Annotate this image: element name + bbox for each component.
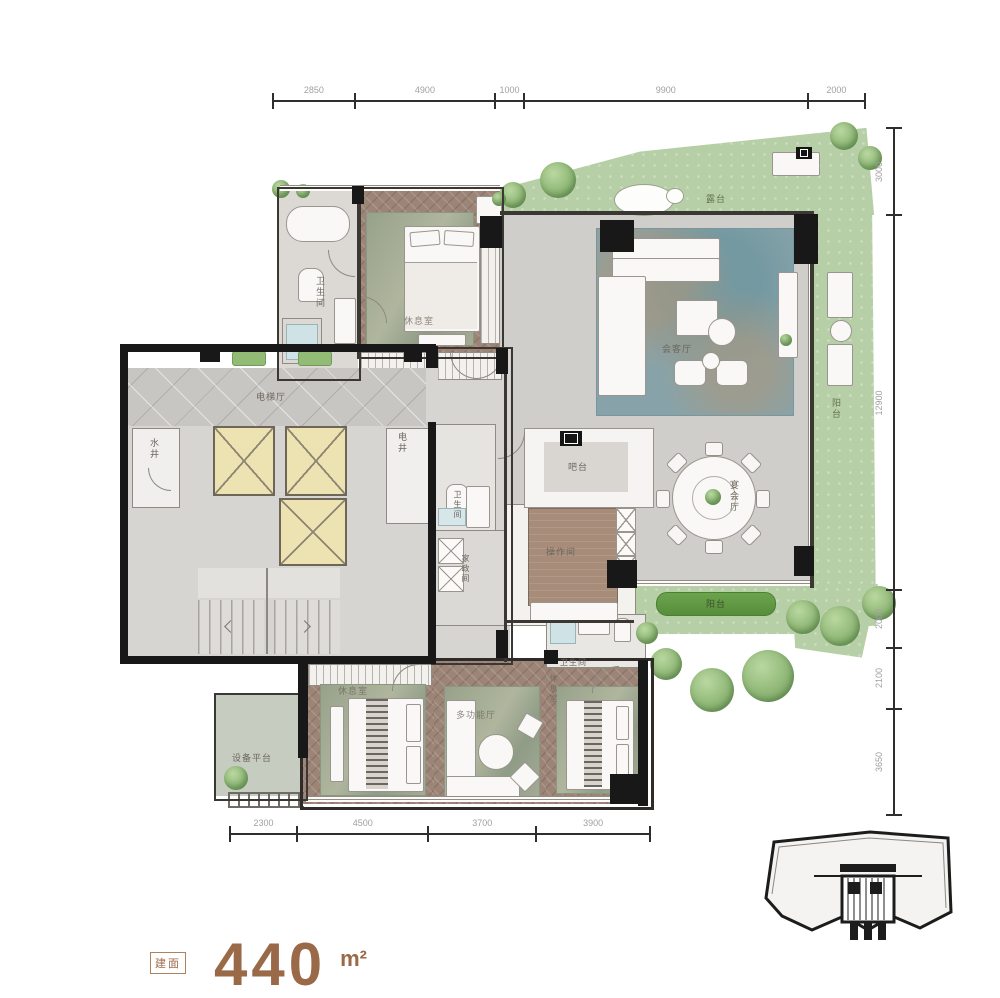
cabinet bbox=[616, 508, 636, 532]
dim-segment: 2000 bbox=[808, 100, 865, 102]
kitchen-bottom-wall bbox=[506, 620, 634, 623]
column bbox=[352, 186, 364, 204]
room-label-suite1-bath: 卫生间 bbox=[314, 276, 327, 309]
grill-icon bbox=[796, 147, 812, 159]
tree-icon bbox=[830, 122, 858, 150]
column bbox=[298, 664, 308, 758]
suite1-bedroom-walls bbox=[357, 187, 504, 359]
dim-segment: 3900 bbox=[536, 833, 650, 835]
tree-icon bbox=[540, 162, 576, 198]
column bbox=[600, 220, 634, 252]
sofa-chaise bbox=[598, 276, 646, 396]
room-label-balcony-right: 阳台 bbox=[830, 398, 843, 420]
living-top-wall bbox=[500, 211, 814, 215]
dim-segment: 3700 bbox=[428, 833, 536, 835]
column bbox=[794, 546, 814, 576]
room-label-multi-hall: 多功能厅 bbox=[456, 708, 496, 721]
tree-icon bbox=[820, 606, 860, 646]
dim-segment: 3650 bbox=[893, 709, 895, 815]
column bbox=[794, 214, 818, 264]
dim-segment: 4500 bbox=[297, 833, 428, 835]
corridor-walls bbox=[431, 347, 513, 665]
room-label-equipment: 设备平台 bbox=[232, 751, 272, 764]
chair bbox=[756, 490, 770, 508]
living-left-wall bbox=[504, 350, 507, 662]
tree-icon bbox=[636, 622, 658, 644]
room-label-terrace: 露台 bbox=[706, 192, 726, 205]
dim-segment: 2000 bbox=[893, 590, 895, 648]
dim-segment: 2850 bbox=[273, 100, 355, 102]
outdoor-round-table bbox=[830, 320, 852, 342]
room-label-balcony-bottom: 阳台 bbox=[706, 597, 726, 610]
lounge-chair bbox=[827, 272, 853, 318]
room-label-banquet: 宴会厅 bbox=[728, 480, 741, 513]
column bbox=[404, 346, 422, 362]
area-unit: m² bbox=[340, 946, 367, 972]
dim-segment: 3000 bbox=[893, 128, 895, 215]
tree-icon bbox=[742, 650, 794, 702]
armchair bbox=[674, 360, 706, 386]
room-label-kitchen: 操作间 bbox=[546, 545, 576, 558]
chair bbox=[656, 490, 670, 508]
column bbox=[200, 346, 220, 362]
dimension-line-right: 3000 12900 2000 2100 3650 bbox=[893, 128, 895, 815]
chair bbox=[705, 540, 723, 554]
room-label-suite2: 休息室 bbox=[338, 684, 368, 697]
room-label-hall-bath: 卫生间 bbox=[452, 490, 463, 520]
room-label-suite1: 休息室 bbox=[404, 314, 434, 327]
small-round-table bbox=[702, 352, 720, 370]
tree-icon bbox=[650, 648, 682, 680]
shower-glass bbox=[550, 620, 576, 644]
room-label-elevator-hall: 电梯厅 bbox=[256, 390, 286, 403]
room-label-housekeeping: 家政间 bbox=[460, 554, 471, 584]
dim-segment: 4900 bbox=[355, 100, 495, 102]
bar-logo-icon bbox=[560, 431, 582, 446]
dimension-line-bottom: 2300 4500 3700 3900 bbox=[230, 833, 650, 835]
centerpiece-icon bbox=[705, 489, 721, 505]
room-label-water-shaft: 水井 bbox=[148, 438, 161, 460]
area-figure: 建面 440 m² bbox=[150, 938, 367, 992]
armchair bbox=[716, 360, 748, 386]
dim-segment: 9900 bbox=[524, 100, 808, 102]
cabinet bbox=[616, 532, 636, 556]
equipment-walls bbox=[214, 693, 308, 801]
side-table bbox=[708, 318, 736, 346]
column bbox=[496, 630, 508, 658]
chair bbox=[705, 442, 723, 456]
dim-segment: 2100 bbox=[893, 648, 895, 709]
core-opening bbox=[426, 368, 438, 422]
area-value: 440 bbox=[214, 938, 326, 992]
bedroom-block-walls bbox=[300, 658, 654, 810]
room-label-suite3-bath: 卫生间 bbox=[560, 657, 587, 668]
dim-segment: 1000 bbox=[495, 100, 524, 102]
appliance-row bbox=[530, 602, 618, 622]
dim-segment: 2300 bbox=[230, 833, 297, 835]
room-label-suite3: 休息室 bbox=[548, 674, 559, 704]
plant-icon bbox=[780, 334, 792, 346]
pond-rock bbox=[666, 188, 684, 204]
room-label-bar: 吧台 bbox=[568, 460, 588, 473]
keyplan-inset bbox=[752, 820, 962, 942]
dim-segment: 12900 bbox=[893, 215, 895, 590]
tree-icon bbox=[786, 600, 820, 634]
room-label-reception: 会客厅 bbox=[662, 342, 692, 355]
area-badge: 建面 bbox=[150, 952, 186, 974]
column bbox=[426, 346, 438, 368]
column bbox=[544, 650, 558, 664]
lounge-chair bbox=[827, 344, 853, 386]
dimension-line-top: 2850 4900 1000 9900 2000 bbox=[273, 100, 865, 102]
column bbox=[496, 348, 508, 374]
column bbox=[638, 660, 648, 806]
room-label-electric-shaft: 电井 bbox=[396, 432, 409, 454]
column bbox=[480, 216, 502, 248]
column bbox=[607, 560, 637, 588]
tree-icon bbox=[690, 668, 734, 712]
window bbox=[634, 580, 810, 586]
living-right-wall bbox=[810, 214, 814, 588]
